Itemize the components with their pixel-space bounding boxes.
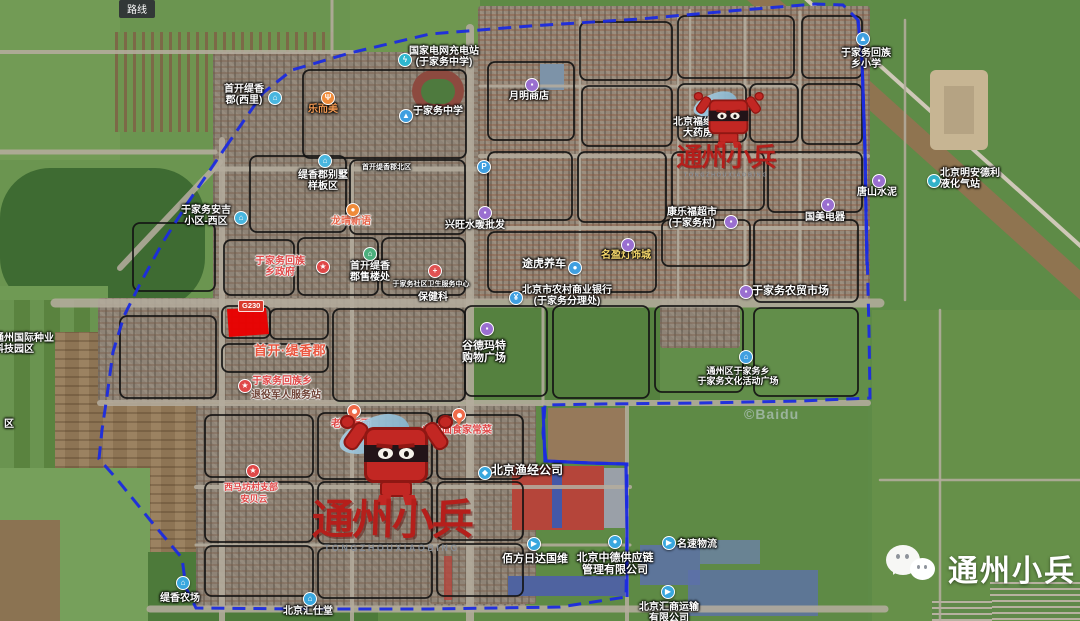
poi-tangshan-cement[interactable]: 唐山水泥 [855, 187, 899, 198]
poi-township-government[interactable]: 于家务回族乡政府 [250, 256, 310, 278]
poi-kanglefu-supermarket[interactable]: 康乐福超市(于家务村) [663, 207, 721, 229]
poi-tuhu-car-care[interactable]: 途虎养车 [519, 258, 569, 270]
poi-qu-partial[interactable]: 区 [2, 419, 16, 430]
poi-guomei-appliance[interactable]: 国美电器 [802, 212, 848, 223]
residence-icon[interactable]: ⌂ [318, 154, 332, 168]
poi-yujiawu-middle-school[interactable]: 于家务中学 [410, 106, 466, 117]
poi-huishitang[interactable]: 北京汇仕堂 [280, 606, 336, 617]
poi-mingandeli-gas-station[interactable]: 北京明安德利液化气站 [940, 168, 1006, 190]
poi-shoukai-tixiangjun[interactable]: 首开·缇香郡 [248, 344, 332, 359]
residence-icon[interactable]: ⌂ [234, 211, 248, 225]
truck-icon[interactable]: ▶ [661, 585, 675, 599]
farm-icon[interactable]: ⌂ [176, 576, 190, 590]
poi-yujiawu-primary-school[interactable]: 于家务回族乡小学 [838, 48, 894, 70]
poi-xima-village-branch[interactable]: 西马坊村支部 [218, 482, 284, 492]
ninja-mascot-icon [664, 92, 788, 147]
poi-shoukai-tixiang-xili[interactable]: 首开缇香郡(西里) [214, 84, 274, 106]
watermark-center: 通州小兵 TONGZHOUXIAOBING [292, 415, 492, 553]
poi-tixiang-sales-office[interactable]: 首开缇香郡售楼处 [344, 261, 396, 283]
star-badge-icon[interactable]: ★ [238, 379, 252, 393]
poi-veterans-service-station[interactable]: 退役军人服务站 [248, 390, 324, 401]
poi-anbeiyun[interactable]: 安贝云 [234, 494, 274, 504]
poi-longqing-xinyu[interactable]: 龙晴新语 [328, 216, 374, 227]
shop-icon[interactable]: ▪ [739, 285, 753, 299]
poi-shuinuan-wholesale[interactable]: 兴旺水暖批发 [442, 220, 508, 231]
poi-state-grid-charging[interactable]: 国家电网充电站(于家务中学) [406, 46, 482, 68]
bank-icon[interactable]: ¥ [509, 291, 523, 305]
watermark-bottom-right: 通州小兵 [886, 545, 1076, 591]
company-icon[interactable]: ⌂ [303, 592, 317, 606]
car-icon[interactable]: ● [568, 261, 582, 275]
poi-baifang-logistics[interactable]: 佰方日达国维 [500, 553, 570, 565]
truck-icon[interactable]: ▶ [662, 536, 676, 550]
watermark-brand-text: 通州小兵 [664, 144, 789, 170]
landmark-icon[interactable]: ⌂ [739, 350, 753, 364]
star-badge-icon[interactable]: ★ [246, 464, 260, 478]
shop-icon[interactable]: ▪ [478, 206, 492, 220]
poi-huishang-transport[interactable]: 北京汇商运输有限公司 [634, 602, 704, 621]
poi-culture-square[interactable]: 通州区于家务乡于家务文化活动广场 [688, 366, 788, 386]
shop-icon[interactable]: ▪ [724, 215, 738, 229]
wechat-icon [886, 545, 938, 591]
restaurant-icon[interactable]: Ψ [321, 91, 335, 105]
shop-icon[interactable]: ▪ [621, 238, 635, 252]
watermark-brand-text: 通州小兵 [948, 546, 1076, 590]
hospital-icon[interactable]: + [428, 264, 442, 278]
poi-gude-mart[interactable]: 谷德玛特购物广场 [458, 340, 510, 365]
parking-icon[interactable]: P [477, 160, 491, 174]
poi-tixiang-farm[interactable]: 缇香农场 [156, 593, 204, 604]
poi-tixiang-north-gate[interactable]: 首开缇香郡北区 [362, 164, 414, 172]
poi-yueming-store[interactable]: 月明商店 [506, 91, 552, 102]
poi-le-er-mei[interactable]: 乐而美 [300, 104, 346, 115]
poi-mingsu-logistics[interactable]: 名速物流 [674, 539, 720, 550]
truck-icon[interactable]: ▶ [527, 537, 541, 551]
poi-anji-community-west[interactable]: 于家务安吉小区-西区 [180, 205, 232, 227]
shop-icon[interactable]: ▪ [525, 78, 539, 92]
poi-farmers-market[interactable]: 于家务农贸市场 [752, 285, 832, 297]
charging-icon[interactable]: ϟ [398, 53, 412, 67]
school-icon[interactable]: ▲ [399, 109, 413, 123]
poi-community-health-center[interactable]: 于家务社区卫生服务中心 [392, 281, 470, 289]
shop-icon[interactable]: ▪ [821, 198, 835, 212]
watermark-brand-text: 通州小兵 [291, 499, 492, 541]
poi-seed-industry-park[interactable]: 通州国际种业科技园区 [0, 333, 60, 355]
shop-icon[interactable]: ▪ [872, 174, 886, 188]
watermark-caps-text: TONGZHOUXIAOBING [292, 543, 492, 553]
poi-huizu-township[interactable]: 于家务回族乡 [248, 376, 316, 387]
poi-rural-commercial-bank[interactable]: 北京市农村商业银行(于家务分理处) [521, 285, 613, 307]
shop-icon[interactable]: ▪ [480, 322, 494, 336]
star-badge-icon[interactable]: ★ [316, 260, 330, 274]
school-icon[interactable]: ▲ [856, 32, 870, 46]
gas-icon[interactable]: ● [927, 174, 941, 188]
satellite-map[interactable]: 首开缇香郡(西里)⌂乐而美Ψ缇香郡别墅样板区⌂首开缇香郡北区国家电网充电站(于家… [0, 0, 1080, 621]
ninja-mascot-icon [292, 415, 492, 503]
poi-tixiang-villa-area[interactable]: 缇香郡别墅样板区 [288, 170, 358, 192]
residence-icon[interactable]: ⌂ [363, 247, 377, 261]
poi-labels-layer: 首开缇香郡(西里)⌂乐而美Ψ缇香郡别墅样板区⌂首开缇香郡北区国家电网充电站(于家… [0, 0, 1080, 621]
residence-icon[interactable]: ⌂ [268, 91, 282, 105]
poi-yujing-fishery[interactable]: 北京渔经公司 [490, 464, 564, 477]
watermark-caps-text: TONGZHOUXIAOBING [664, 171, 788, 177]
company-icon[interactable]: ● [608, 535, 622, 549]
watermark-top-right: 通州小兵 TONGZHOUXIAOBING [664, 92, 788, 178]
poi-baojianke[interactable]: 保健科 [414, 292, 452, 303]
residence-icon[interactable]: ● [346, 203, 360, 217]
route-panel-button[interactable]: 路线 [119, 0, 155, 18]
poi-zhongde-supply-chain[interactable]: 北京中德供应链管理有限公司 [575, 552, 655, 577]
